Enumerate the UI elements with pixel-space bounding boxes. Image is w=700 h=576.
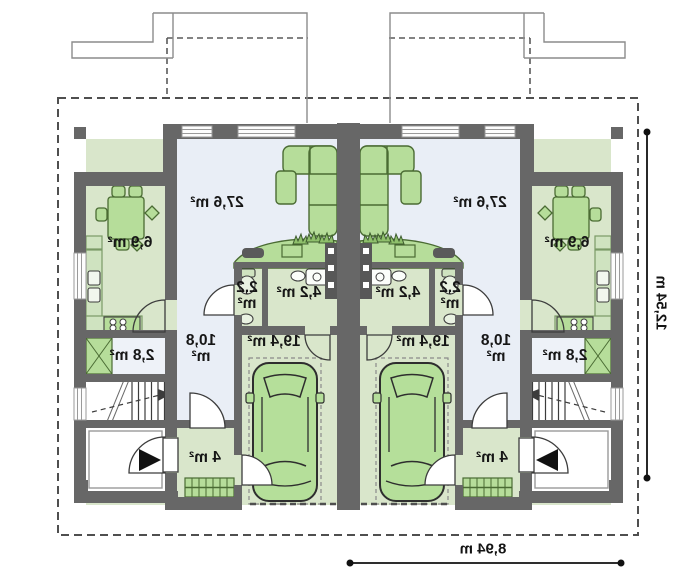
floor-plan-svg xyxy=(0,0,700,576)
dimension-line-width xyxy=(347,560,625,567)
floor-plan: 27,6 m² 6,9 m² 2,8 m² 10,8 m² 2,2 m² 4,2… xyxy=(0,0,700,576)
room-label-pantry-right: 2,8 m² xyxy=(543,348,588,364)
room-label-pantry-left: 2,8 m² xyxy=(110,348,155,364)
dimension-line-depth xyxy=(644,129,651,482)
room-label-wc-left: 2,2 m² xyxy=(232,280,262,312)
room-label-kitchen-right: 6,9 m² xyxy=(545,235,590,251)
roof-overhang-dashline xyxy=(167,38,530,98)
room-label-entry-left: 4 m² xyxy=(189,450,221,466)
room-label-wc-right: 2,2 m² xyxy=(435,280,465,312)
terrace-outline xyxy=(72,13,625,123)
room-label-garage-left: 19,4 m² xyxy=(247,334,300,350)
room-label-hall-right: 10,8 m² xyxy=(474,333,518,365)
room-label-entry-right: 4 m² xyxy=(476,450,508,466)
room-label-living-left: 27,6 m² xyxy=(190,195,243,211)
room-label-kitchen-left: 6,9 m² xyxy=(108,235,153,251)
room-label-hall-left: 10,8 m² xyxy=(179,333,223,365)
room-label-garage-right: 19,4 m² xyxy=(396,334,449,350)
dim-width-label: 8,94 m xyxy=(460,541,507,558)
room-label-living-right: 27,6 m² xyxy=(453,195,506,211)
dim-depth-label: 12,54 m xyxy=(653,275,670,330)
room-label-bath-right: 4,2 m² xyxy=(376,285,421,301)
room-label-bath-left: 4,2 m² xyxy=(277,285,322,301)
